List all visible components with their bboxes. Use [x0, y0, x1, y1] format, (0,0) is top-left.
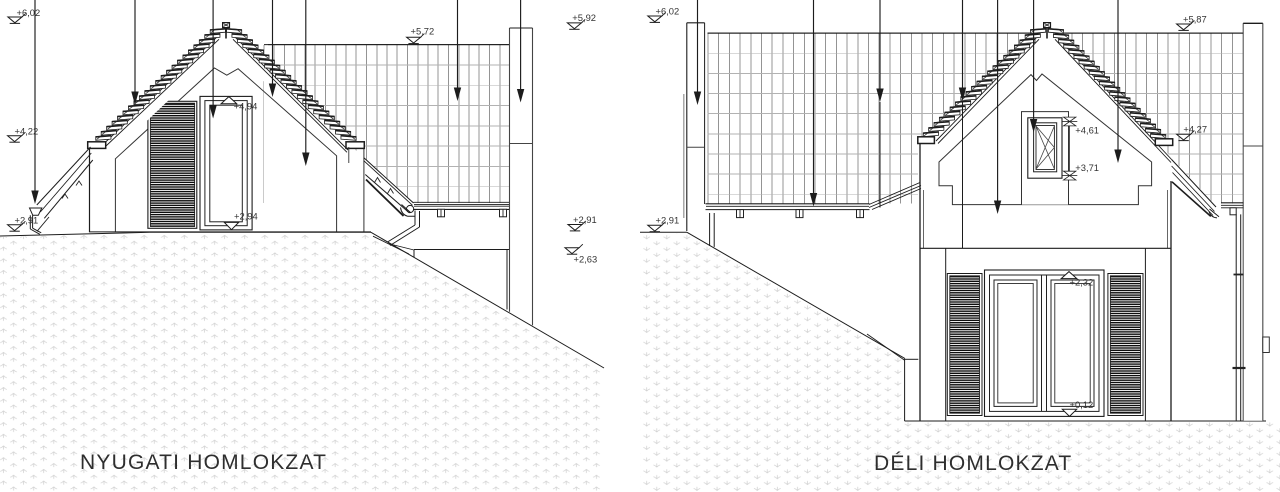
svg-text:+2,94: +2,94 — [234, 211, 258, 222]
svg-text:+3,71: +3,71 — [1075, 162, 1099, 173]
svg-text:+2,91: +2,91 — [573, 214, 597, 225]
svg-text:+6,02: +6,02 — [656, 6, 680, 17]
svg-text:+5,87: +5,87 — [1183, 13, 1207, 24]
svg-text:DÉLI HOMLOKZAT: DÉLI HOMLOKZAT — [874, 452, 1072, 475]
svg-text:+5,92: +5,92 — [572, 12, 596, 23]
svg-text:+5,72: +5,72 — [411, 25, 435, 36]
svg-text:+0,12: +0,12 — [1070, 399, 1094, 410]
svg-text:+6,02: +6,02 — [17, 7, 41, 18]
svg-text:+2,91: +2,91 — [15, 215, 39, 226]
svg-text:+2,63: +2,63 — [574, 254, 598, 265]
svg-text:NYUGATI HOMLOKZAT: NYUGATI HOMLOKZAT — [80, 451, 327, 474]
svg-text:+2,32: +2,32 — [1070, 276, 1094, 287]
svg-text:+4,22: +4,22 — [15, 125, 39, 136]
svg-text:+4,94: +4,94 — [234, 100, 258, 111]
svg-text:+2,91: +2,91 — [656, 215, 680, 226]
svg-text:+4,27: +4,27 — [1183, 124, 1207, 135]
svg-text:+4,61: +4,61 — [1075, 124, 1099, 135]
